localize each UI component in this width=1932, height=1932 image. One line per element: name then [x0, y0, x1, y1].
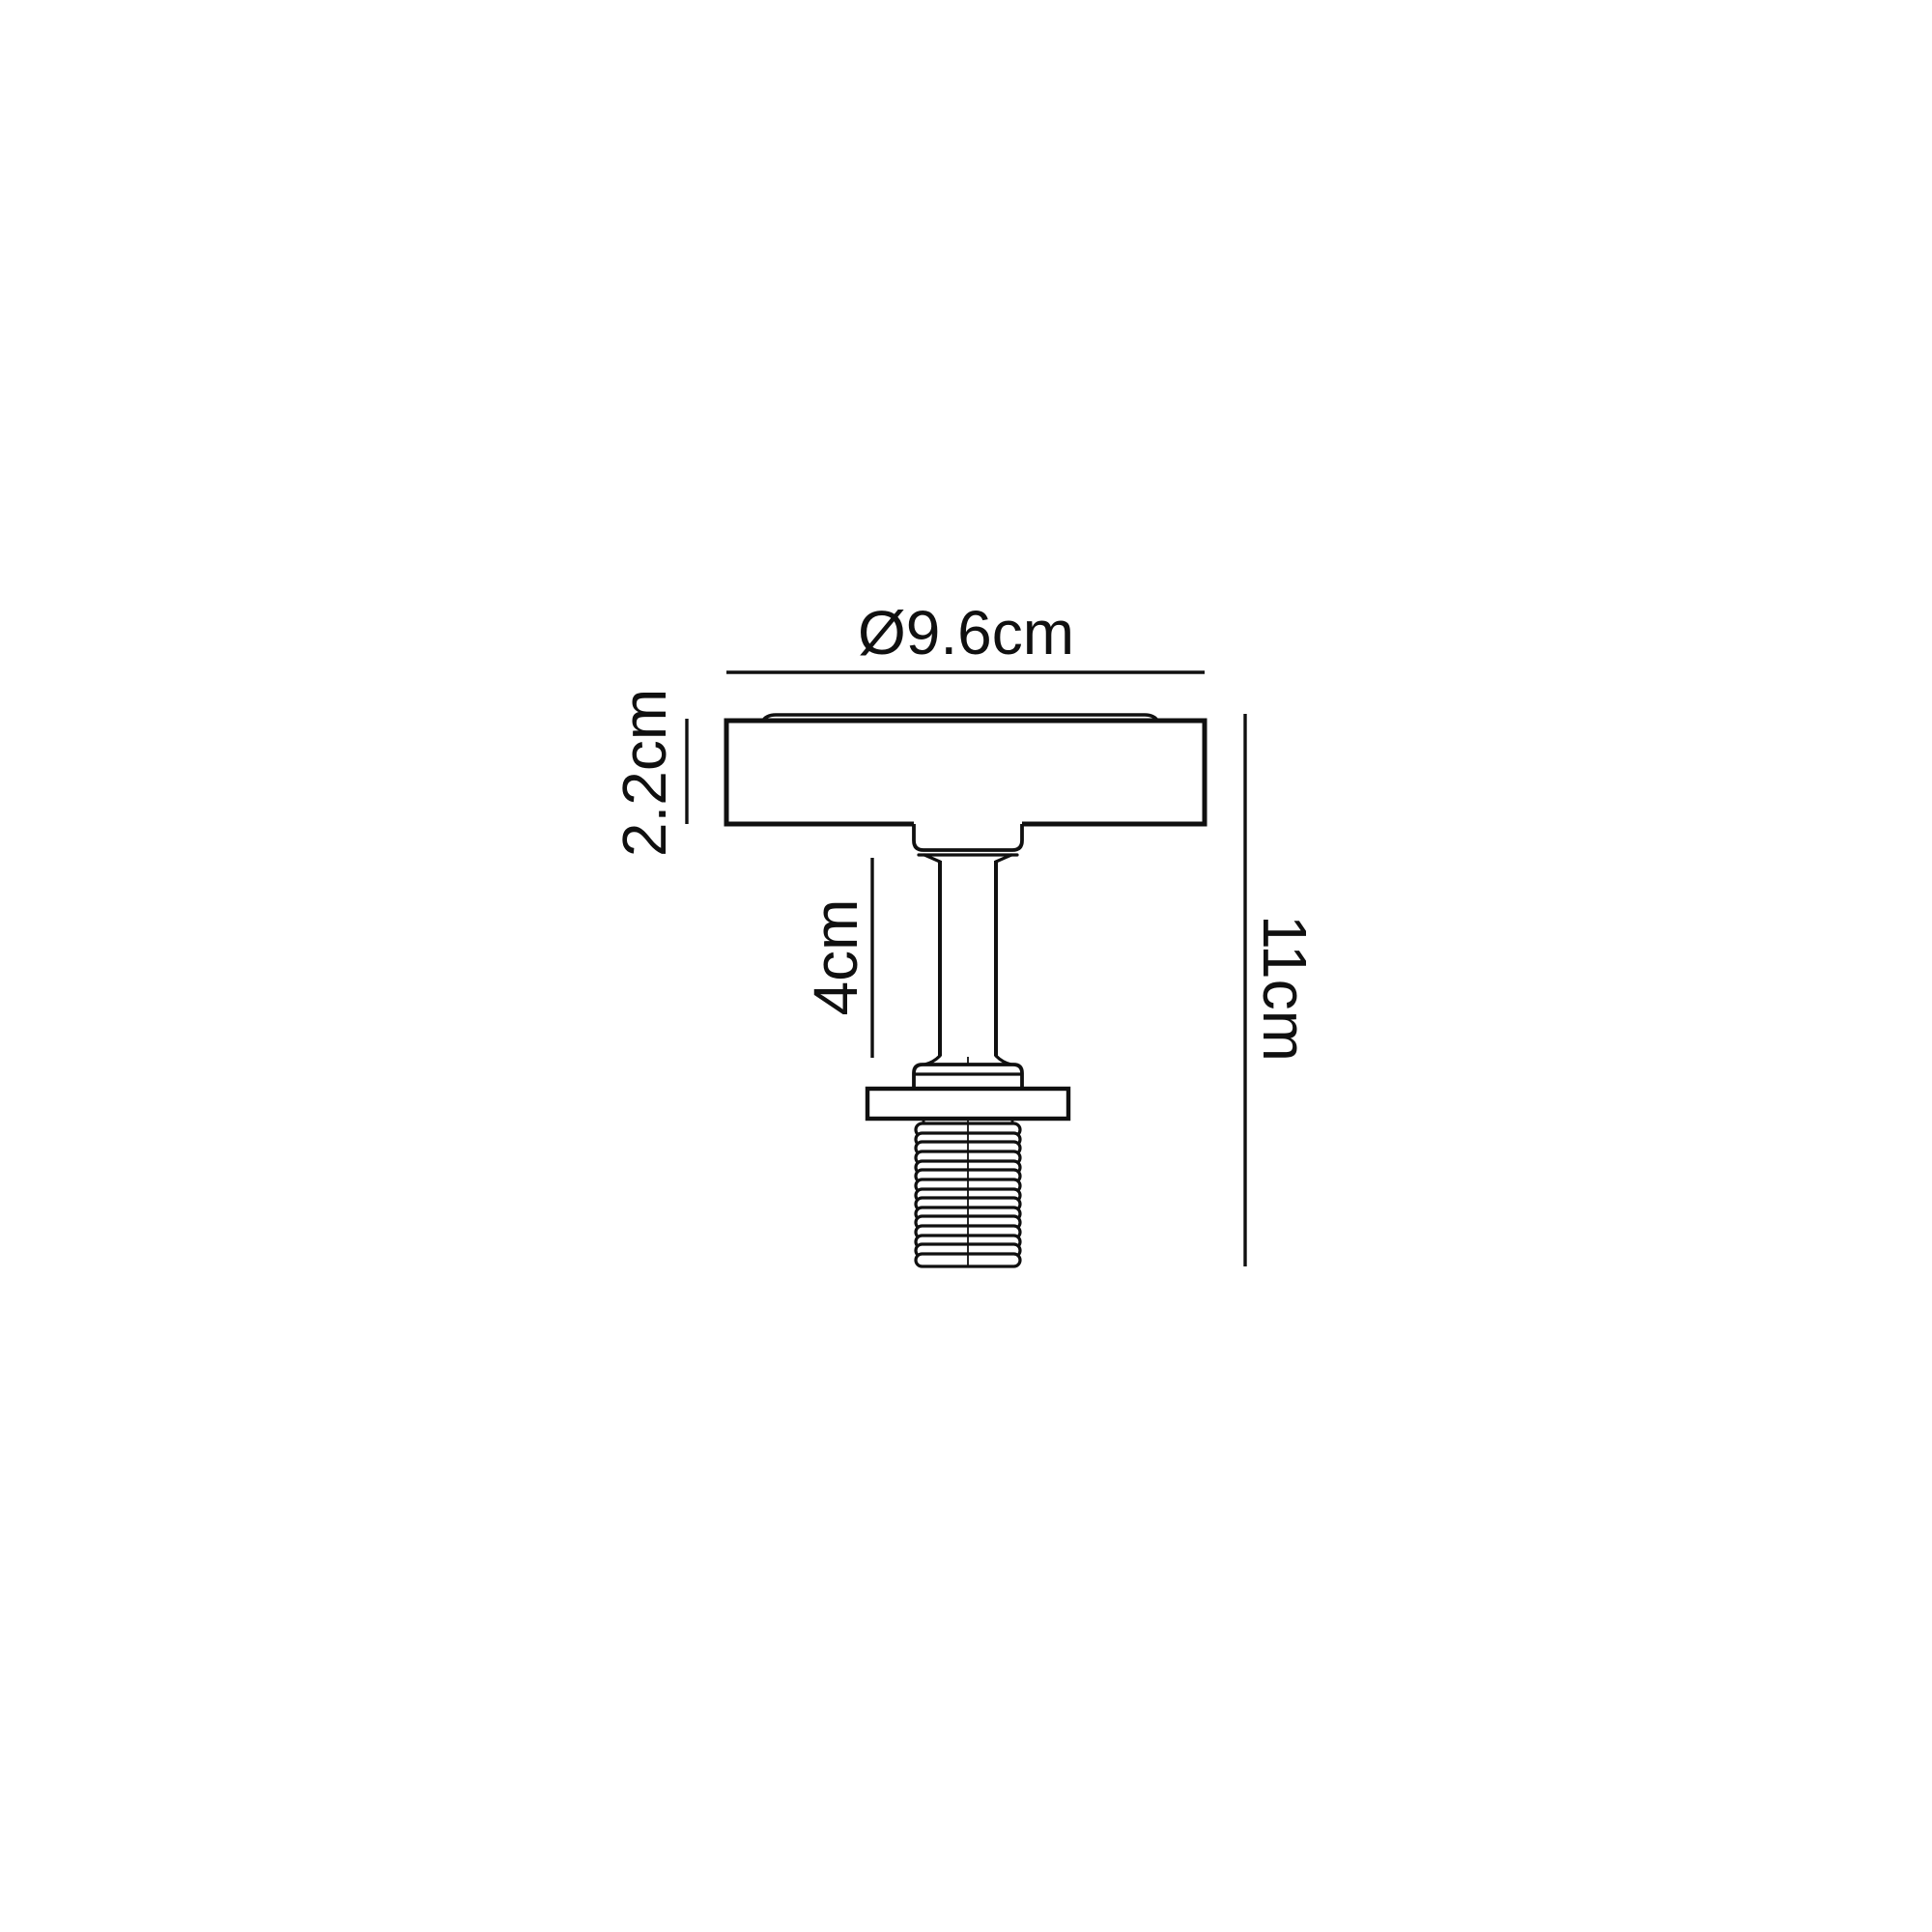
mounting-flange: [867, 1089, 1068, 1119]
lower-collar: [914, 1065, 1022, 1089]
technical-drawing: Ø9.6cm 2.2cm 4cm 11cm: [0, 0, 1932, 1932]
canopy-disc: [726, 721, 1205, 824]
stem-length-label: 4cm: [801, 899, 870, 1016]
stem-tube: [940, 861, 996, 1056]
overall-height-label: 11cm: [1250, 915, 1320, 1062]
drawing-canvas: Ø9.6cm 2.2cm 4cm 11cm: [0, 0, 1932, 1932]
diameter-label: Ø9.6cm: [858, 598, 1074, 668]
canopy-height-label: 2.2cm: [610, 689, 679, 857]
upper-collar: [914, 824, 1022, 850]
